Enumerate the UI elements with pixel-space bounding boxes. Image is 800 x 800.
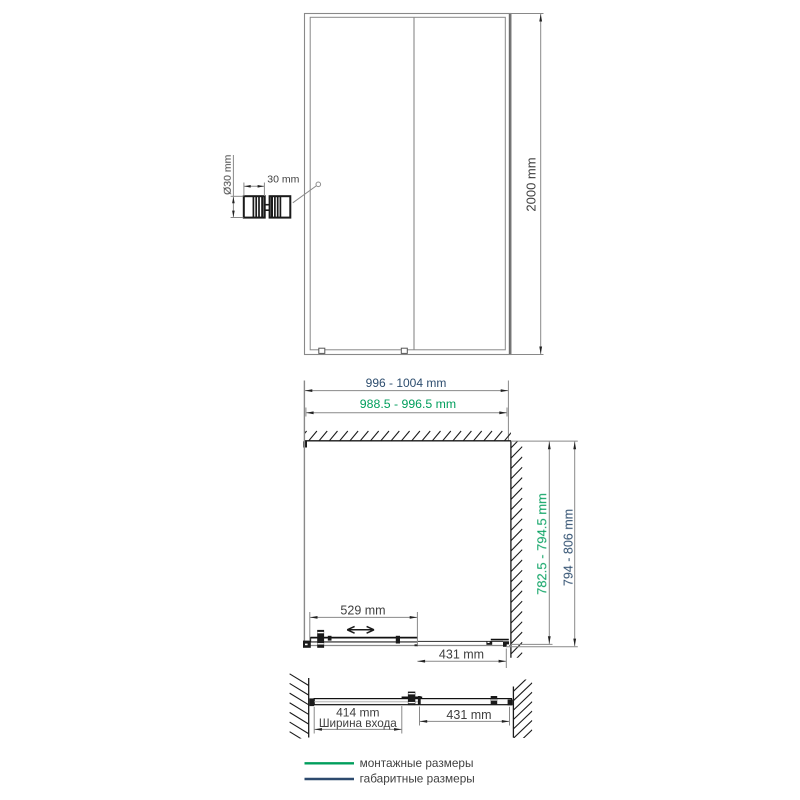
svg-text:30 mm: 30 mm	[267, 174, 299, 186]
svg-text:996 - 1004 mm: 996 - 1004 mm	[366, 376, 447, 390]
svg-text:794 - 806 mm: 794 - 806 mm	[562, 509, 576, 586]
svg-text:431 mm: 431 mm	[439, 647, 484, 661]
svg-text:Ширина входа: Ширина входа	[319, 717, 397, 730]
svg-text:529 mm: 529 mm	[340, 603, 385, 617]
svg-text:988.5 - 996.5 mm: 988.5 - 996.5 mm	[360, 397, 456, 411]
svg-text:431 mm: 431 mm	[446, 708, 491, 722]
svg-text:габаритные размеры: габаритные размеры	[360, 772, 475, 786]
svg-text:782.5 - 794.5 mm: 782.5 - 794.5 mm	[534, 493, 549, 595]
svg-text:2000 mm: 2000 mm	[524, 157, 539, 211]
svg-text:монтажные размеры: монтажные размеры	[360, 756, 474, 770]
svg-text:Ø30 mm: Ø30 mm	[222, 154, 234, 195]
